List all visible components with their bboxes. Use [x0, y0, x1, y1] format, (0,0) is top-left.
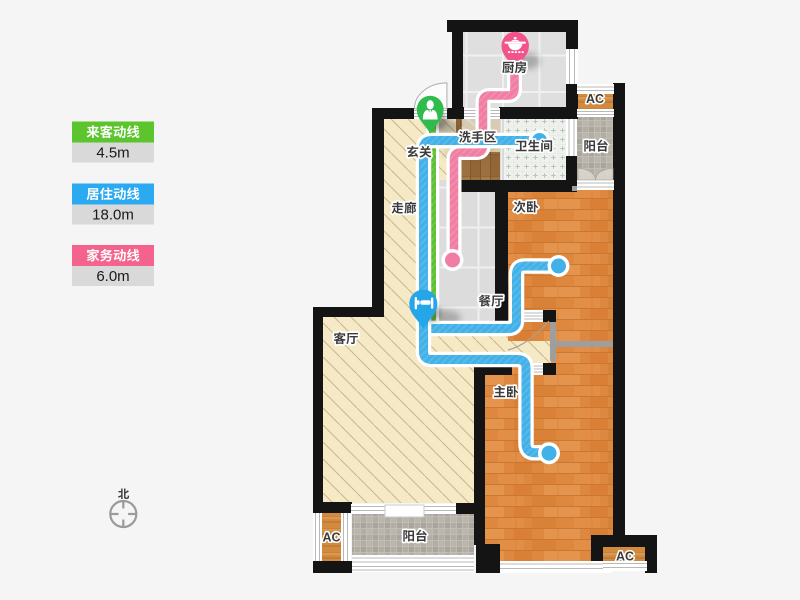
svg-text:AC: AC: [322, 531, 340, 545]
svg-text:4.5m: 4.5m: [96, 145, 129, 162]
svg-text:AC: AC: [616, 550, 634, 564]
svg-text:6.0m: 6.0m: [96, 268, 129, 285]
svg-text:18.0m: 18.0m: [92, 207, 134, 224]
svg-text:AC: AC: [586, 92, 604, 106]
